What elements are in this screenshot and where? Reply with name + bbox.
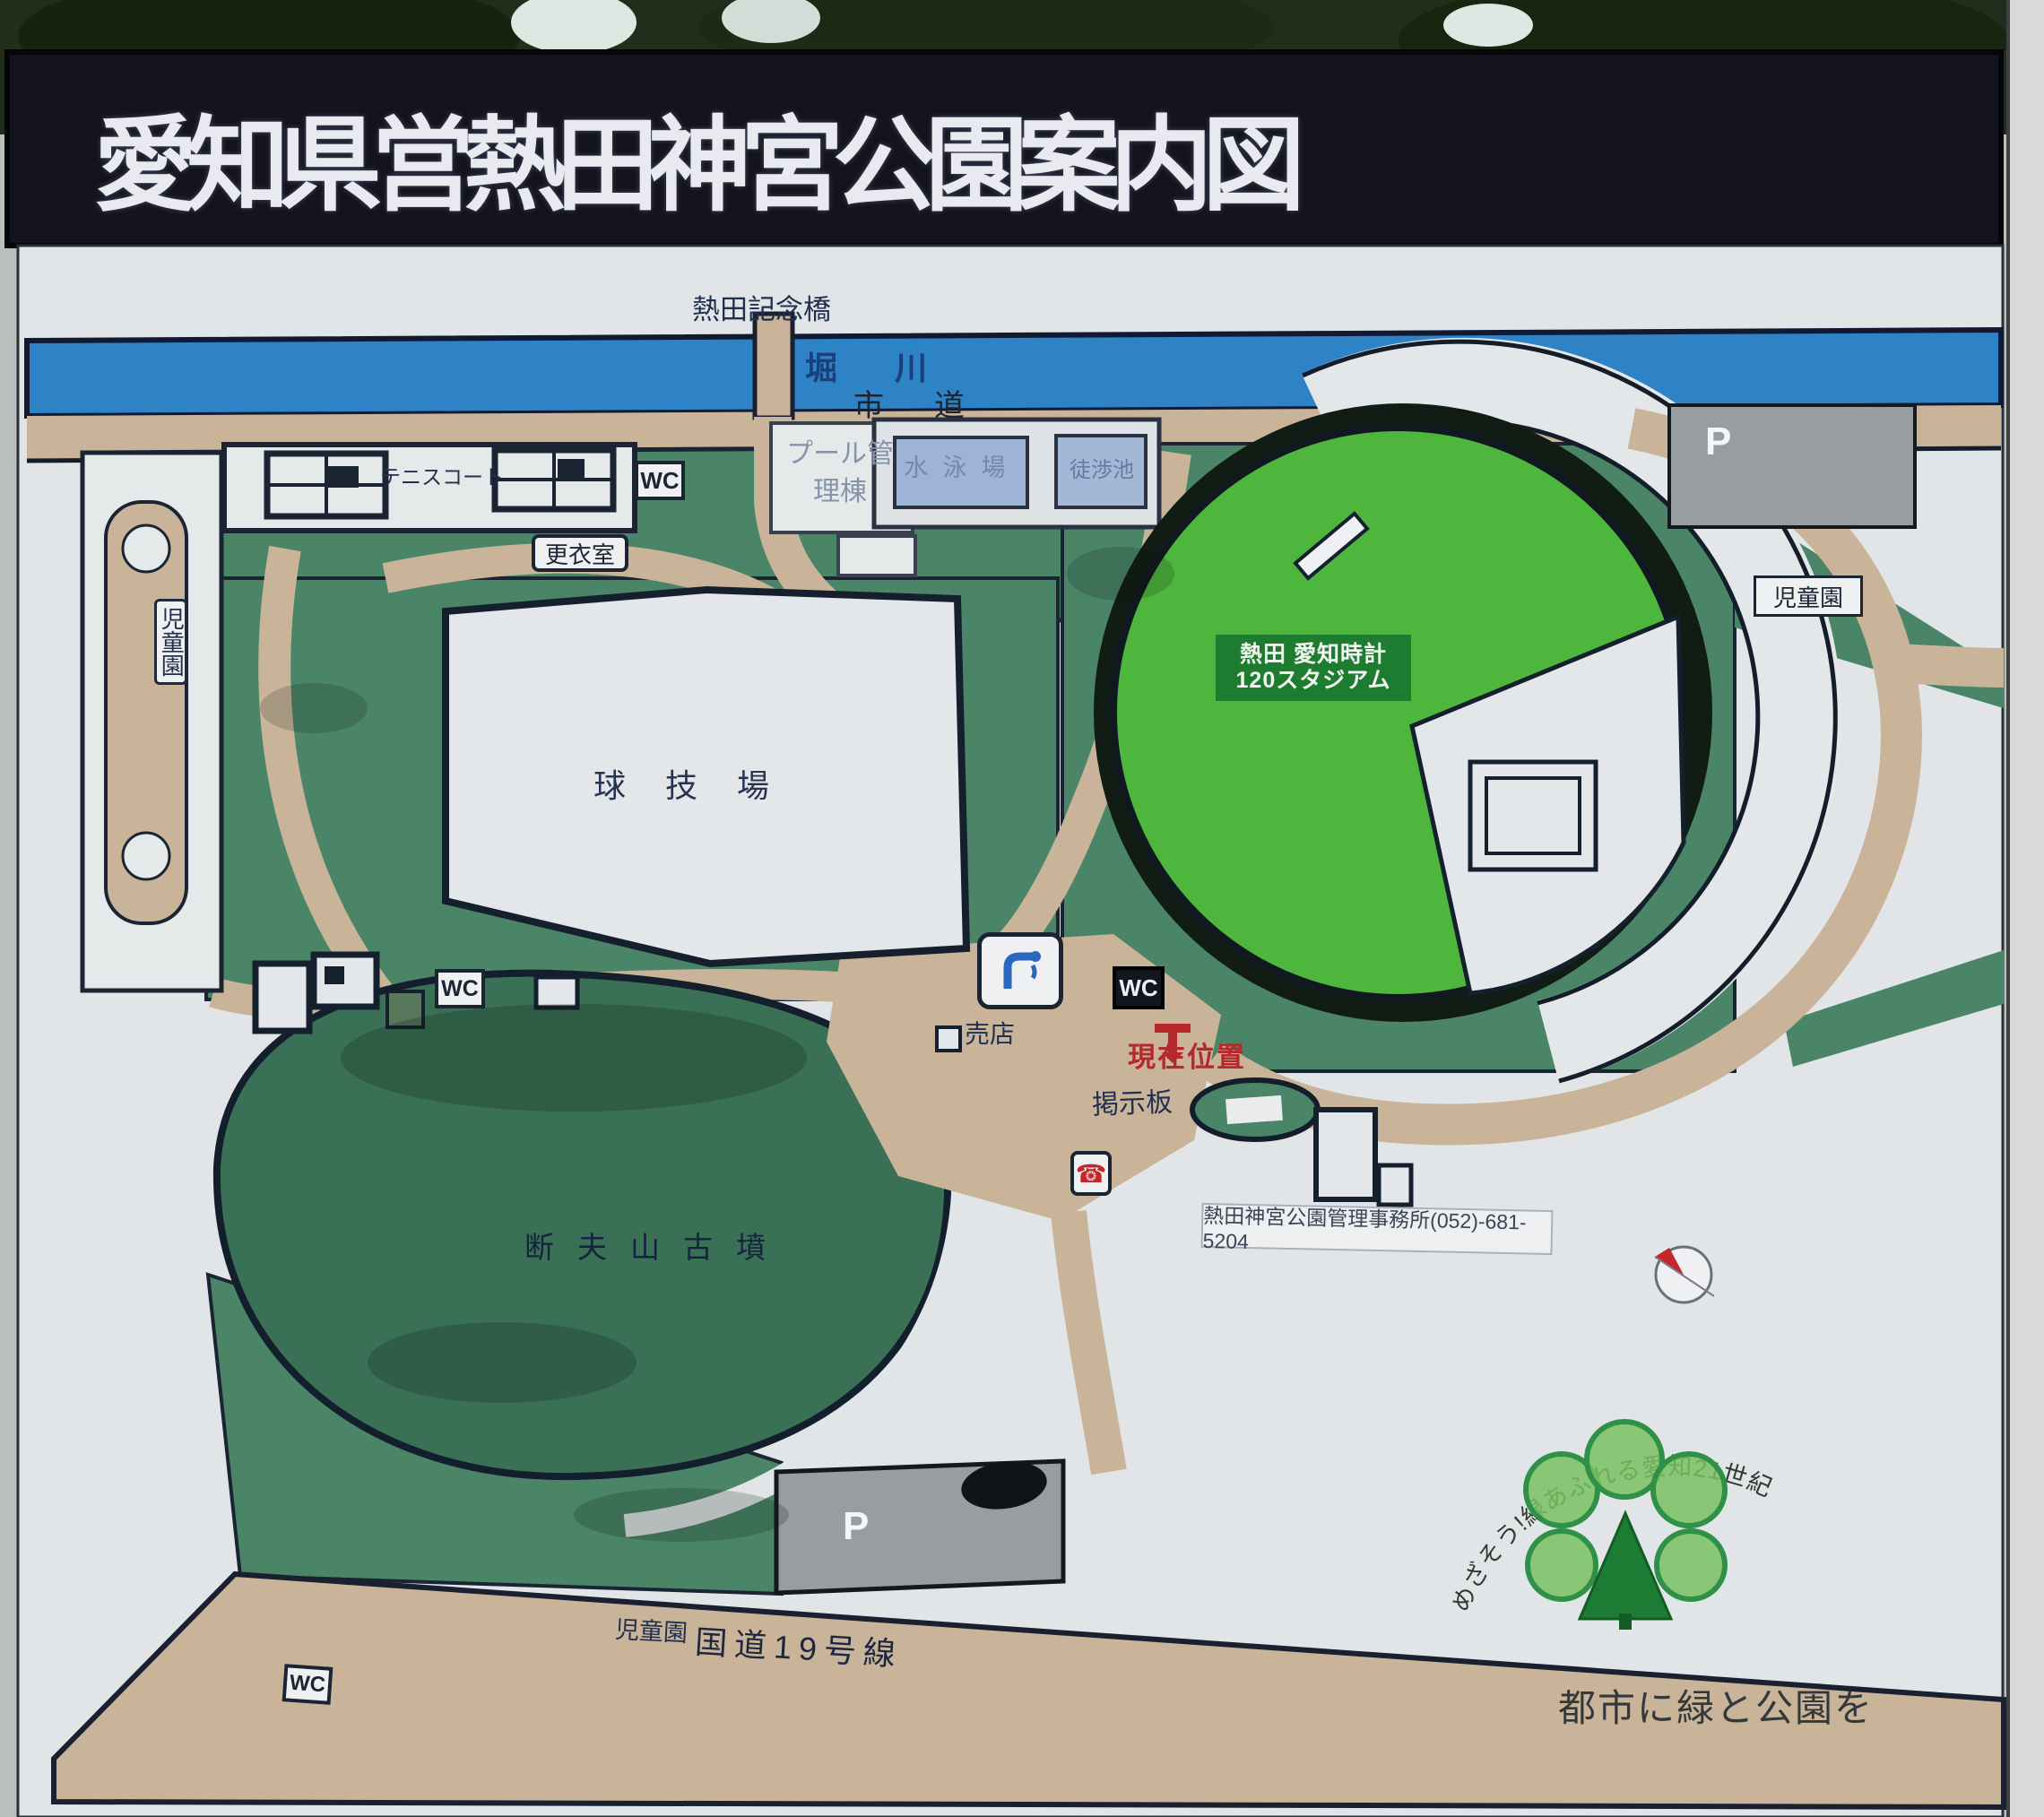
children-garden-label-left: 児童園: [154, 599, 187, 685]
pool-building-label: プール管理棟: [782, 436, 898, 511]
wc-sign: WC: [282, 1664, 333, 1705]
current-location-label: 現在位置: [1128, 1043, 1246, 1073]
slogan-main-label: 都市に緑と公園を: [1558, 1689, 1874, 1728]
wading-pool-label: 徒渉池: [1058, 459, 1146, 481]
fountain-glyph: [993, 946, 1047, 996]
sign-frame-strip: [2008, 0, 2044, 1817]
children-garden-label-bottom: 児童園: [614, 1617, 688, 1647]
wc-sign: WC: [435, 969, 485, 1008]
wc-sign: WC: [1113, 966, 1165, 1009]
phone-glyph: ☎: [1076, 1159, 1107, 1189]
bridge-label: 熱田記念橋: [692, 296, 831, 325]
compass-icon: [1655, 1247, 1714, 1302]
shop-shape: [937, 1027, 960, 1051]
office-phone-label: 熱田神宮公園管理事務所(052)-681-5204: [1201, 1203, 1554, 1255]
river-label: 堀川: [805, 351, 984, 385]
park-guide-sign-photo: めざそう!緑あふれる愛知21世紀 愛知県営熱田神宮公園案内図 熱田記念橋 堀川 …: [0, 0, 2044, 1817]
main-pool-label: 水泳場: [898, 455, 1026, 480]
small-building: [314, 955, 377, 1007]
parking-icon: P: [843, 1504, 869, 1549]
bulletin-board-label: 掲示板: [1091, 1088, 1173, 1120]
stadium-label-line2: 120スタジアム: [1236, 668, 1391, 694]
city-road-label: 市道: [853, 391, 1015, 423]
ball-field-label: 球技場: [593, 769, 809, 803]
sign-title: 愛知県営熱田神宮公園案内図: [94, 82, 1977, 235]
bridge-shape: [755, 314, 792, 418]
stadium-label-line1: 熱田 愛知時計: [1240, 642, 1387, 668]
children-garden-label-right: 児童園: [1754, 575, 1863, 617]
park-map-artwork: めざそう!緑あふれる愛知21世紀: [0, 0, 2044, 1817]
small-building: [255, 964, 309, 1031]
tennis-court-label: テニスコート: [380, 466, 504, 488]
kofun-mound-label: 断夫山古墳: [524, 1233, 789, 1264]
wc-sign: WC: [635, 461, 685, 500]
public-phone-icon: ☎: [1070, 1151, 1112, 1196]
shop-label: 売店: [965, 1021, 1015, 1047]
parking-icon: P: [1705, 420, 1731, 464]
drinking-fountain-icon: [977, 932, 1063, 1009]
stadium-label: 熱田 愛知時計 120スタジアム: [1216, 635, 1411, 701]
office-building-shape: [1316, 1110, 1375, 1199]
changing-room-label: 更衣室: [532, 534, 628, 572]
